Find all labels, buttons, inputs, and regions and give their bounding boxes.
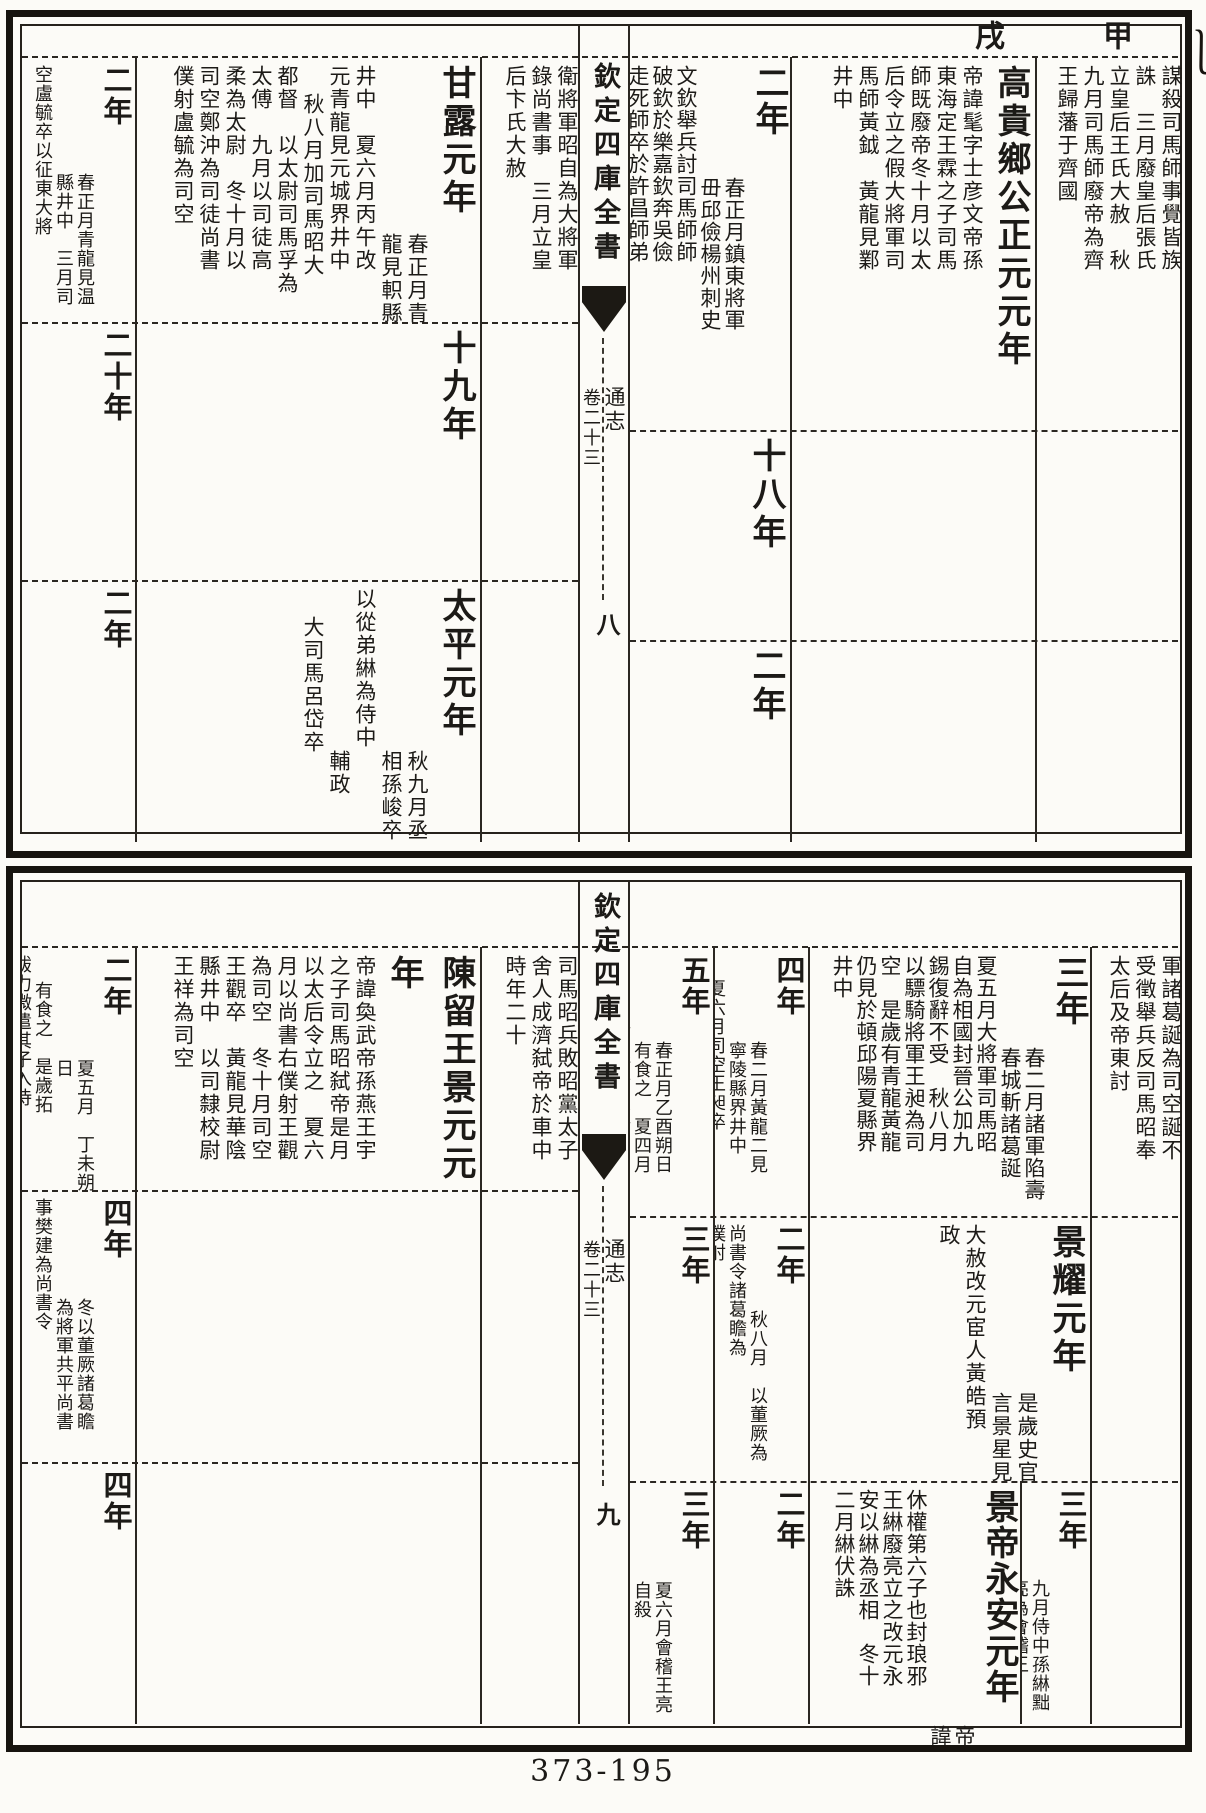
text-column: 三年 <box>1050 1489 1092 1742</box>
text-column: 三年 <box>673 1224 715 1489</box>
text-column: 以驃騎將軍王昶為司 <box>902 955 926 1224</box>
text-column: 柔為太尉 冬十月以 <box>222 65 248 330</box>
text-column: 為司空 冬十月司空 <box>248 955 274 1198</box>
text-column: 春二月諸軍陷壽 <box>1022 955 1046 1224</box>
cell-ganlu-3: 三年春二月諸軍陷壽春城斬諸葛誕夏五月大將軍司馬昭自為相國封晉公加九錫復辭不受 秋… <box>810 947 1102 1228</box>
book-page-scan: 甲 戌 ⎱ 欽定四庫全書 通志 卷二十三 八 謀殺司馬師事覺皆族誅 三月廢皇后張… <box>0 0 1206 1813</box>
text-column: 時年二十 <box>502 955 528 1198</box>
text-column: 甘露元年 <box>430 65 482 330</box>
text-column: 輔政 <box>326 588 352 850</box>
text-column: 四年 <box>95 1198 137 1470</box>
text-column: 十九年 <box>430 330 482 588</box>
text-column: 帝諱髦字士彦文帝孫 <box>959 65 985 438</box>
text-column: 夏六月會稽王亮 <box>652 1489 673 1742</box>
text-column: 司馬昭兵敗昭黨太子 <box>554 955 580 1198</box>
text-column: 以太后令立之 夏六 <box>300 955 326 1198</box>
cell-zhengyuan-2-continuation: 衛將軍昭自為大將軍錄尚書事 三月立皇后卞氏大赦 <box>482 57 590 334</box>
cell-ganlu-5-continuation: 司馬昭兵敗昭黨太子舍人成濟弑帝於車中時年二十 <box>482 947 590 1202</box>
text-column: 井中 <box>830 955 854 1224</box>
text-column: 師既廢帝冬十月以太 <box>907 65 933 438</box>
folio-number-recto: 八 <box>588 612 624 636</box>
text-column: 空 是歲有青龍黃龍 <box>878 955 902 1224</box>
text-column: 夏五月大將軍司馬昭 <box>974 955 998 1224</box>
text-column: 寧陵縣界井中 <box>726 955 747 1224</box>
text-column: 月以尚書右僕射王觀 <box>274 955 300 1198</box>
text-column: 大赦改元宦人黃皓預 <box>962 1224 988 1489</box>
text-column: 以從弟綝為侍中 <box>352 588 378 850</box>
text-column: 馬師黃鉞 黃龍見鄴 <box>855 65 881 438</box>
cell-ganlu-2: 二年春正月青龍見温縣井中 三月司空盧毓卒以征東大將 <box>22 57 147 334</box>
page-label: 373-195 <box>0 1754 1206 1789</box>
text-column: 王觀卒 黃龍見華陰 <box>222 955 248 1198</box>
text-column: 太傅 九月以司徒高 <box>248 65 274 330</box>
text-column: 秋八月 以董厥為 <box>747 1224 768 1489</box>
text-column: 錄尚書事 三月立皇 <box>528 65 554 330</box>
cell-taiping-3: 三年九月侍中孫綝黜亮為會稽王 <box>1022 1481 1102 1746</box>
text-column: 帝諱奐武帝孫燕王宇 <box>352 955 378 1198</box>
strip-fold-line <box>602 1186 604 1486</box>
text-column: 走死師卒於許昌師弟 <box>630 65 650 438</box>
text-column: 都督 以太尉司馬孚為 <box>274 65 300 330</box>
cell-yanxi-19: 十九年 <box>137 322 508 592</box>
cell-wufeng-2: 二年 <box>630 640 818 854</box>
text-column: 夏五月 丁未朔日 <box>53 955 95 1198</box>
cell-zhengyuan-1: 高貴鄉公正元元年帝諱髦字士彦文帝孫東海定王霖之子司馬師既廢帝冬十月以太后令立之假… <box>792 57 1047 442</box>
cell-jiaping-continuation: 謀殺司馬師事覺皆族誅 三月廢皇后張氏立皇后王氏大赦 秋九月司馬師廢帝為齊王歸藩于… <box>1037 57 1194 442</box>
text-column: 春正月乙酉朔日 <box>652 955 673 1224</box>
text-column: 有食之 夏四月 <box>631 955 652 1224</box>
text-column: 五年 <box>673 955 715 1224</box>
text-column: 文欽舉兵討司馬師師 <box>674 65 698 438</box>
text-column: 王祥為司空 <box>170 955 196 1198</box>
text-column: 言景星見 <box>988 1224 1014 1489</box>
text-column: 受徵舉兵反司馬昭奉 <box>1132 955 1158 1224</box>
text-column: 四年 <box>95 1470 137 1742</box>
text-column: 跋力微遣其子入侍 <box>22 955 32 1198</box>
text-column: 春正月青 <box>404 65 430 330</box>
text-column: 冬以董厥諸葛瞻 <box>74 1198 95 1470</box>
ganzhi-jia: 甲 <box>1092 20 1136 50</box>
text-column: 二年 <box>95 588 137 850</box>
text-column: 春正月青龍見温 <box>74 65 95 330</box>
text-column: 僕射盧毓為司空 <box>170 65 196 330</box>
text-column: 九月侍中孫綝黜 <box>1029 1489 1050 1742</box>
cell-yongan-3: 三年夏六月會稽王亮自殺 <box>630 1481 725 1746</box>
text-column: 元青龍見元城界井中 <box>326 65 352 330</box>
text-column: 井中 夏六月丙午改 <box>352 65 378 330</box>
text-column: 三年 <box>1046 955 1092 1224</box>
text-column: 自為相國封晉公加九 <box>950 955 974 1224</box>
text-column: 休權第六子也封琅邪 <box>904 1489 928 1742</box>
text-column: 之子司馬昭弑帝是月 <box>326 955 352 1198</box>
text-column: 四年 <box>768 955 810 1224</box>
cell-ganlu-2-continuation: 軍諸葛誕為司空誕不受徵舉兵反司馬昭奉太后及帝東討 <box>1092 947 1194 1228</box>
cell-taiping-1: 太平元年秋九月丞相孫峻卒以從弟綝為侍中輔政大司馬呂岱卒 <box>137 580 492 854</box>
text-column: 春正月鎮東將軍 <box>722 65 746 438</box>
cell-jingyao-4: 四年冬以董厥諸葛瞻為將軍共平尚書事樊建為尚書令 <box>22 1190 147 1474</box>
text-column: 王綝廢亮立之改元永 <box>880 1489 904 1742</box>
text-column: 相孫峻卒 <box>378 588 404 850</box>
text-column: 空盧毓卒以征東大將 <box>32 65 53 330</box>
text-column: 誅 三月廢皇后張氏 <box>1132 65 1158 438</box>
cell-jingyuan-2: 二年夏五月 丁未朔日有食之 是歲拓跋力微遣其子入侍 <box>22 947 147 1202</box>
text-column: 謀殺司馬師事覺皆族 <box>1158 65 1184 438</box>
text-column: 政 <box>936 1224 962 1489</box>
text-column: 秋八月加司馬昭大 <box>300 65 326 330</box>
text-column: 景耀元年 <box>1040 1224 1092 1489</box>
cell-jingyuan-1: 陳留王景元元年帝諱奐武帝孫燕王宇之子司馬昭弑帝是月以太后令立之 夏六月以尚書右僕… <box>137 947 492 1202</box>
juan-number: 卷二十三 <box>580 388 602 468</box>
text-column: 九月司馬師廢帝為齊 <box>1080 65 1106 438</box>
folio-number-verso: 九 <box>588 1502 624 1526</box>
cell-ganlu-1: 甘露元年春正月青龍見軹縣井中 夏六月丙午改元青龍見元城界井中秋八月加司馬昭大都督… <box>137 57 492 334</box>
text-column: 舍人成濟弑帝於車中 <box>528 955 554 1198</box>
text-column: 二十年 <box>95 330 137 588</box>
text-column: 太平元年 <box>430 588 482 850</box>
text-column: 二年 <box>95 65 137 330</box>
cell-ganlu-4: 四年春二月黃龍二見寧陵縣界井中夏六月司空王昶卒 <box>715 947 820 1228</box>
book-title: 通志 <box>601 1238 627 1286</box>
text-column: 二年 <box>95 955 137 1198</box>
text-column: 龍見軹縣 <box>378 65 404 330</box>
text-column: 二年 <box>746 65 792 438</box>
text-column: 衛將軍昭自為大將軍 <box>554 65 580 330</box>
cell-ganlu-5: 五年春正月乙酉朔日有食之 夏四月帝自將宿衛討大將軍 <box>630 947 725 1228</box>
cell-jingyao-1: 景耀元年是歲史官言景星見大赦改元宦人黃皓預政 <box>810 1216 1102 1493</box>
cell-yongan-1: 景帝永安元年帝諱休權第六子也封琅邪王綝廢亮立之改元永安以綝為丞相 冬十二月綝伏誅 <box>810 1481 1032 1746</box>
cell-yongan-4: 四年 <box>22 1462 163 1746</box>
text-column: 安以綝為丞相 冬十 <box>856 1489 880 1742</box>
text-column: 自殺 <box>631 1489 652 1742</box>
text-column: 二年 <box>740 648 792 850</box>
text-column: 王歸藩于齊國 <box>1054 65 1080 438</box>
text-column: 井中 <box>829 65 855 438</box>
book-title: 通志 <box>601 386 627 434</box>
text-column: 后令立之假大將軍司 <box>881 65 907 438</box>
strip-fold-line <box>602 338 604 600</box>
text-column: 縣井中 三月司 <box>53 65 74 330</box>
cell-yanxi-20: 二十年 <box>22 322 163 592</box>
text-column: 東海定王霖之子司馬 <box>933 65 959 438</box>
text-column: 陳留王景元元年 <box>378 955 482 1198</box>
text-column: 后卞氏大赦 <box>502 65 528 330</box>
cell-zhengyuan-2: 二年春正月鎮東將軍毌邱儉楊州刺史文欽舉兵討司馬師師破欽於樂嘉欽奔吳儉走死師卒於許… <box>630 57 802 442</box>
text-column: 立皇后王氏大赦 秋 <box>1106 65 1132 438</box>
text-column: 錫復辭不受 秋八月 <box>926 955 950 1224</box>
cell-yongan-2: 二年 <box>715 1481 836 1746</box>
text-column: 有食之 是歲拓 <box>32 955 53 1198</box>
text-column: 春城斬諸葛誕 <box>998 955 1022 1224</box>
text-column: 司空鄭沖為司徒尚書 <box>196 65 222 330</box>
text-column: 二年 <box>768 1489 810 1742</box>
cell-taiping-2: 二年 <box>22 580 163 854</box>
text-column: 帝諱 <box>928 1489 976 1742</box>
text-column: 三年 <box>673 1489 715 1742</box>
text-column: 為將軍共平尚書 <box>53 1198 74 1470</box>
text-column: 二年 <box>768 1224 810 1489</box>
text-column: 是歲史官 <box>1014 1224 1040 1489</box>
text-column: 秋九月丞 <box>404 588 430 850</box>
text-column: 十八年 <box>740 438 792 648</box>
text-column: 縣井中 以司隸校尉 <box>196 955 222 1198</box>
text-column: 軍諸葛誕為司空誕不 <box>1158 955 1184 1224</box>
cell-jingyao-3: 三年 <box>630 1216 741 1493</box>
text-column: 高貴鄉公正元元年 <box>985 65 1037 438</box>
ganzhi-xu: 戌 <box>964 20 1008 50</box>
text-column: 春二月黃龍二見 <box>747 955 768 1224</box>
text-column: 景帝永安元年 <box>976 1489 1022 1742</box>
text-column: 大司馬呂岱卒 <box>300 588 326 850</box>
text-column: 太后及帝東討 <box>1106 955 1132 1224</box>
cell-yanxi-18: 十八年 <box>630 430 818 652</box>
text-column: 破欽於樂嘉欽奔吳儉 <box>650 65 674 438</box>
text-column: 事樊建為尚書令 <box>32 1198 53 1470</box>
text-column: 仍見於頓邱陽夏縣界 <box>854 955 878 1224</box>
text-column: 帝自將宿衛討大將軍 <box>630 955 631 1224</box>
text-column: 毌邱儉楊州刺史 <box>698 65 722 438</box>
juan-number: 卷二十三 <box>580 1240 602 1320</box>
